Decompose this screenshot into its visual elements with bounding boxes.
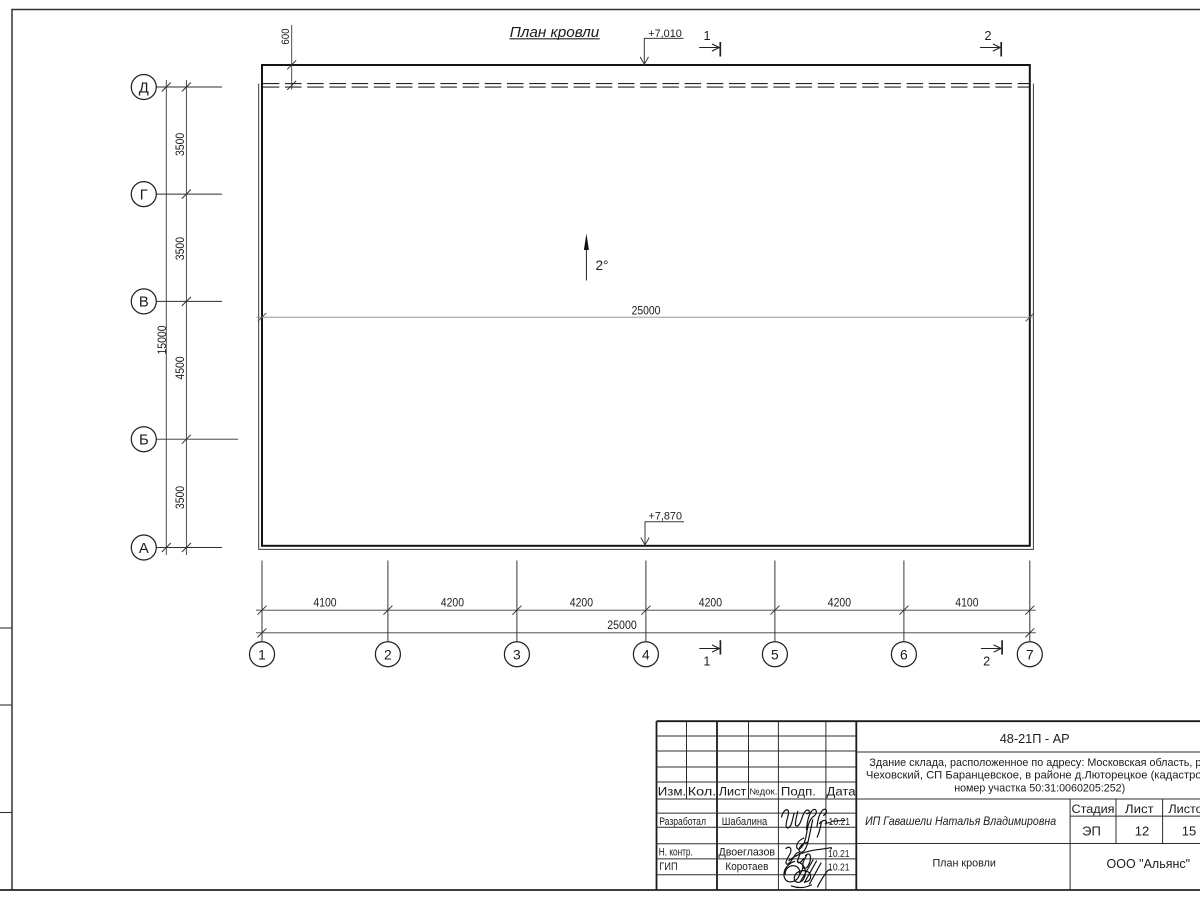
svg-text:25000: 25000 [607,618,637,632]
svg-text:Кол.: Кол. [688,785,717,799]
svg-text:10.21: 10.21 [828,863,850,874]
svg-text:ГИП: ГИП [659,861,678,873]
svg-text:Г: Г [140,187,148,203]
svg-text:600: 600 [280,28,292,44]
svg-text:15: 15 [1182,824,1197,839]
svg-text:Шабалина: Шабалина [722,816,768,828]
svg-text:А: А [139,541,149,557]
svg-text:4500: 4500 [174,356,187,379]
svg-text:Лист: Лист [719,785,747,799]
svg-text:3500: 3500 [174,133,187,156]
svg-text:ИП Гавашели Наталья Владимиров: ИП Гавашели Наталья Владимировна [865,814,1056,828]
svg-text:№док.: №док. [749,786,777,796]
svg-text:1: 1 [703,29,710,43]
svg-text:48-21П - АР: 48-21П - АР [1000,731,1070,746]
svg-text:3500: 3500 [174,486,187,509]
svg-text:4100: 4100 [313,596,336,609]
svg-text:Б: Б [139,433,149,449]
svg-text:Изм.: Изм. [658,785,687,799]
svg-text:4200: 4200 [699,596,722,609]
svg-text:Здание склада, расположенное п: Здание склада, расположенное по адресу: … [869,757,1200,769]
svg-text:+7,870: +7,870 [649,510,683,522]
svg-text:Н. контр.: Н. контр. [659,846,693,858]
svg-text:2°: 2° [596,258,609,273]
svg-text:Стадия: Стадия [1072,802,1115,816]
svg-text:Д: Д [139,80,149,96]
svg-text:3500: 3500 [174,237,187,260]
svg-text:Подп.: Подп. [781,785,816,799]
svg-text:25000: 25000 [632,303,661,317]
svg-text:ЭП: ЭП [1082,824,1101,839]
svg-text:ООО "Альянс": ООО "Альянс" [1107,857,1191,871]
svg-text:Листов: Листов [1168,802,1200,816]
svg-text:10.21: 10.21 [828,849,850,860]
svg-text:1: 1 [703,654,710,668]
svg-text:12: 12 [1135,824,1150,839]
svg-text:План кровли: План кровли [932,858,996,870]
svg-text:номер участка 50:31:0060205:25: номер участка 50:31:0060205:252) [954,783,1125,795]
svg-text:4200: 4200 [441,596,464,609]
svg-text:Коротаев: Коротаев [725,861,768,873]
svg-text:Чеховский, СП Баранцевское, в: Чеховский, СП Баранцевское, в районе д.Л… [866,770,1200,782]
svg-text:10.21: 10.21 [829,817,851,828]
svg-text:Двоеглазов: Двоеглазов [719,846,776,858]
svg-text:В: В [139,295,149,311]
svg-text:5: 5 [771,647,779,662]
svg-text:Лист: Лист [1125,802,1154,816]
svg-text:3: 3 [513,647,521,662]
svg-text:2: 2 [983,654,990,668]
svg-text:6: 6 [900,647,908,662]
svg-text:7: 7 [1026,647,1034,662]
svg-text:15000: 15000 [156,326,169,355]
svg-text:2: 2 [384,647,392,662]
svg-text:4200: 4200 [828,596,851,609]
svg-text:4200: 4200 [570,596,593,609]
svg-text:4: 4 [642,647,650,662]
svg-text:4100: 4100 [955,596,978,609]
svg-text:2: 2 [984,29,991,43]
svg-text:Дата: Дата [827,785,856,799]
svg-text:1: 1 [258,647,266,662]
svg-text:Разработал: Разработал [659,816,706,828]
